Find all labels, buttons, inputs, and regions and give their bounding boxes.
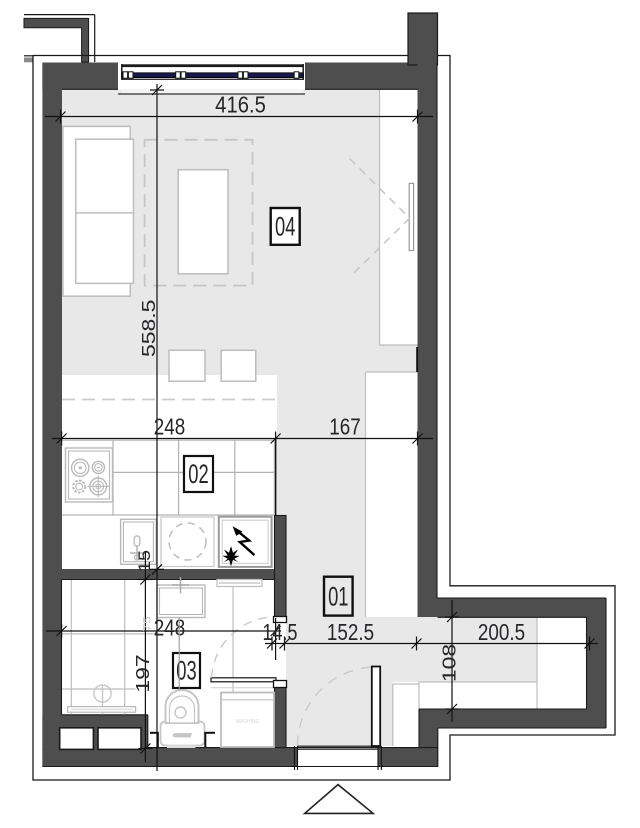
svg-text:197: 197 [133, 654, 154, 692]
svg-text:04: 04 [275, 211, 296, 241]
svg-text:01: 01 [328, 581, 348, 611]
svg-text:558.5: 558.5 [139, 300, 160, 358]
svg-text:416.5: 416.5 [215, 91, 266, 118]
svg-text:248: 248 [154, 616, 185, 641]
svg-text:GEBERIT: GEBERIT [174, 733, 192, 738]
svg-text:167: 167 [329, 415, 360, 440]
svg-text:14.5: 14.5 [263, 620, 298, 646]
svg-text:248: 248 [154, 415, 185, 440]
svg-text:200.5: 200.5 [478, 620, 525, 645]
svg-text:15: 15 [135, 550, 154, 572]
svg-text:02: 02 [188, 458, 208, 488]
svg-text:75: 75 [140, 616, 153, 632]
svg-text:152.5: 152.5 [327, 620, 374, 645]
svg-text:108: 108 [439, 644, 460, 682]
svg-text:WASHING: WASHING [236, 719, 260, 725]
